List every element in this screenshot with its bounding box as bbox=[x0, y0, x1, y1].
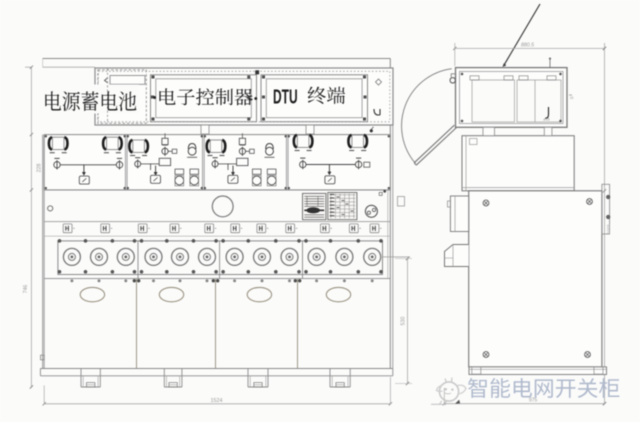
svg-text:530: 530 bbox=[400, 317, 406, 326]
svg-text:DTU: DTU bbox=[273, 85, 298, 108]
svg-text:975: 975 bbox=[529, 398, 538, 404]
svg-text:228: 228 bbox=[37, 164, 43, 173]
svg-text:746: 746 bbox=[23, 285, 29, 294]
svg-text:880.5: 880.5 bbox=[521, 42, 534, 48]
svg-text:1005: 1005 bbox=[606, 224, 611, 234]
svg-text:1524: 1524 bbox=[211, 398, 223, 404]
svg-text:15: 15 bbox=[570, 96, 574, 100]
svg-text:⌀15: ⌀15 bbox=[543, 118, 549, 122]
